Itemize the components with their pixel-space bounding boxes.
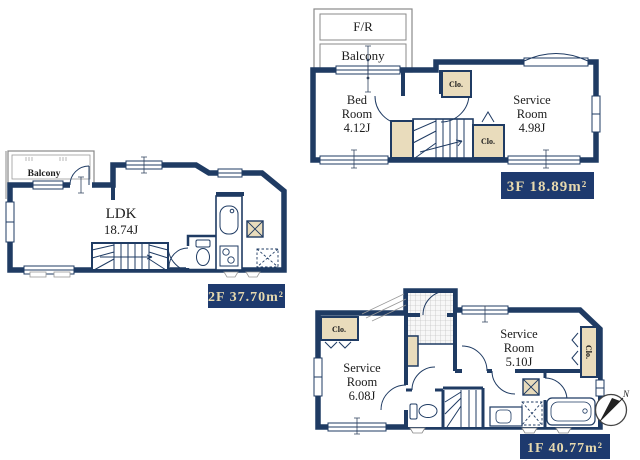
f3-closet-top: Clo.	[442, 71, 471, 97]
floor-2f: Balcony	[6, 151, 285, 308]
f3-fr-label: F/R	[353, 19, 373, 34]
toilet-icon	[410, 404, 437, 419]
f2-ldk-name: LDK	[106, 206, 137, 222]
storage-box-icon	[523, 379, 539, 395]
f1-service-left-area: 6.08J	[349, 389, 376, 403]
bathtub-icon	[547, 398, 595, 425]
f2-kitchen	[216, 196, 278, 270]
f2-ldk-area: 18.74J	[104, 222, 138, 237]
floor-1f: Clo. Clo. Service Room 6.08J Serv	[314, 291, 610, 459]
compass-north-label: N	[622, 389, 630, 399]
refrigerator-space-icon	[257, 249, 278, 267]
sink-icon	[220, 206, 238, 234]
f3-fr-balcony-structure: F/R Balcony	[314, 9, 412, 72]
f1-floor-label-box: 1F 40.77m²	[520, 434, 610, 459]
f2-floor-label-box: 2F 37.70m²	[208, 284, 285, 308]
f3-stairs-icon	[413, 119, 473, 158]
f2-balcony-label: Balcony	[28, 169, 61, 179]
f1-service-right-name-1: Service	[500, 327, 538, 341]
f3-service-name-2: Room	[517, 107, 548, 121]
floor-3f: F/R Balcony Clo. Clo.	[313, 9, 600, 199]
f3-balcony-label: Balcony	[341, 48, 385, 63]
f3-closet-bottom: Clo.	[473, 112, 504, 158]
f3-bedroom-name-2: Room	[342, 107, 373, 121]
f2-floor-label: 2F 37.70m²	[208, 290, 284, 305]
floor-plan-canvas: F/R Balcony Clo. Clo.	[0, 0, 640, 460]
f3-service-area: 4.98J	[519, 121, 546, 135]
f1-service-right-name-2: Room	[504, 341, 535, 355]
f1-service-right-area: 5.10J	[506, 355, 533, 369]
f1-service-left-name-2: Room	[347, 375, 378, 389]
f1-closet-left: Clo.	[321, 317, 358, 348]
stove-icon	[220, 246, 238, 266]
f2-stairs-icon	[92, 243, 168, 270]
f1-floor-label: 1F 40.77m²	[527, 441, 603, 456]
f3-closet-bottom-label: Clo.	[481, 137, 495, 146]
f3-bedroom-area: 4.12J	[344, 121, 371, 135]
f3-closet-top-label: Clo.	[449, 80, 463, 89]
f1-service-left-name-1: Service	[343, 361, 381, 375]
f3-storage	[391, 121, 413, 158]
f1-approach-hatch	[362, 294, 406, 321]
hatch-box-icon	[247, 221, 263, 237]
f1-closet-right-label: Clo.	[584, 345, 593, 359]
washbasin-icon	[490, 407, 522, 426]
toilet-icon	[196, 240, 210, 266]
f3-floor-label: 3F 18.89m²	[507, 179, 588, 195]
f3-floor-label-box: 3F 18.89m²	[501, 172, 594, 199]
f3-bedroom-name-1: Bed	[347, 93, 368, 107]
f3-service-name-1: Service	[513, 93, 551, 107]
f1-closet-left-label: Clo.	[332, 325, 346, 334]
floor-plan-image: F/R Balcony Clo. Clo.	[0, 0, 640, 460]
